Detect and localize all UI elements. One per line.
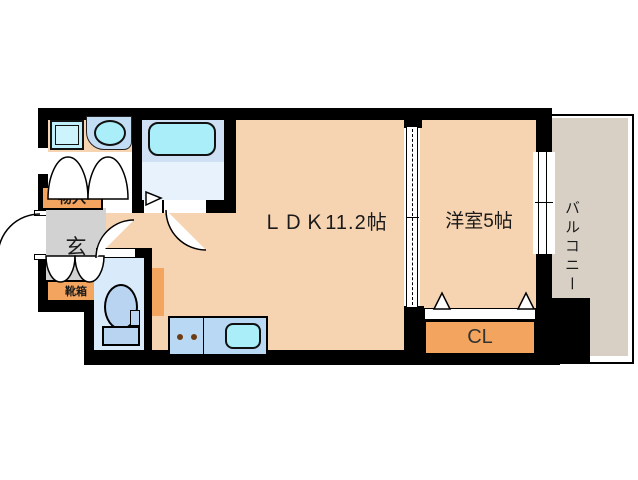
ldk-label: ＬＤＫ11.2帖: [240, 206, 410, 234]
stove-burner-icon: [191, 334, 197, 340]
wall-bath-right: [224, 108, 236, 213]
pipe-space: [152, 268, 164, 316]
toilet-tank-icon: [102, 326, 140, 346]
western-room-label: 洋室5帖: [424, 206, 534, 232]
entrance-label: 玄: [66, 231, 87, 261]
balcony-window: [533, 152, 555, 254]
ldk-door-opening: [164, 200, 206, 213]
wall-wash-bath-divider: [132, 116, 142, 213]
kitchen-counter: [168, 316, 268, 356]
shoe-cabinet-label: 靴箱: [65, 283, 87, 299]
kitchen-sink-icon: [225, 323, 261, 349]
wall-partition-top: [404, 108, 422, 128]
closet-door-track: [424, 308, 536, 320]
bathroom-door-opening: [144, 200, 162, 213]
left-wall-window: [38, 146, 48, 176]
storage-label: 物入: [58, 188, 86, 208]
front-door-arc: [0, 214, 40, 256]
toilet-door: [96, 248, 136, 258]
toilet-flush-icon: [130, 310, 140, 326]
bathtub-icon: [148, 122, 216, 156]
washing-machine-pan-icon: [50, 120, 84, 150]
kitchen-counter-divider: [203, 318, 204, 354]
closet-box: CL: [424, 320, 536, 355]
floor-plan: 玄 物入 靴箱 CL: [0, 0, 638, 480]
closet-label: CL: [467, 326, 493, 349]
bathroom-floor-lower: [142, 162, 224, 200]
storage-cabinet: 物入: [41, 186, 103, 210]
balcony-label: バルコニー: [558, 172, 582, 322]
stove-burner-icon: [177, 334, 183, 340]
wall-toilet-right: [144, 248, 152, 358]
wash-basin-icon: [94, 120, 126, 146]
